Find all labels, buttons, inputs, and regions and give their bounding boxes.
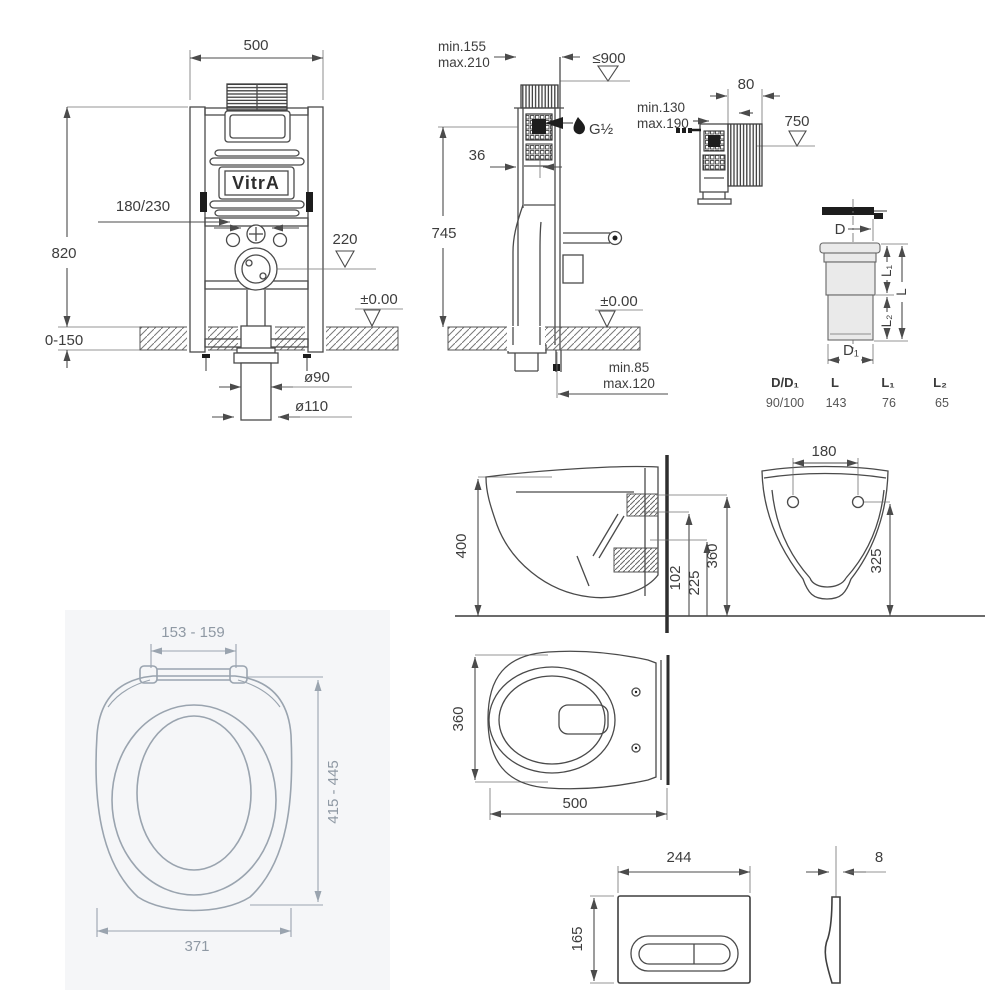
connector-size-table: D/D₁ L L₁ L₂ 90/100 143 76 65 (766, 375, 949, 410)
drawing-svg: 500 820 0-150 (0, 0, 1000, 1000)
dim-frame-height: 820 (51, 245, 76, 262)
dim-flush-pipe-heights: 180/230 (116, 198, 170, 215)
dim-supply-min: min.130 (637, 100, 685, 115)
dim-frame-side-height: 745 (431, 225, 456, 242)
dim-hinge-spacing: 153 - 159 (161, 624, 224, 641)
dim-plate-width: 244 (666, 849, 691, 866)
figure-frame-front-view: 500 820 0-150 (45, 37, 403, 420)
dim-pipe-offset: 36 (469, 147, 486, 164)
dim-floor-adjust: 0-150 (45, 332, 83, 349)
dim-dia90: ø90 (304, 369, 330, 386)
table-header-l: L (831, 375, 839, 390)
dim-panel-max-height: ≤900 (592, 50, 625, 67)
dim-depth-max: max.210 (438, 55, 490, 70)
dim-supply-max: max.190 (637, 116, 689, 131)
vitra-logo: VitrA (232, 173, 280, 193)
figure-connector-pipe: D L₁ L L₂ D₁ D/D₁ L L₁ L₂ (766, 199, 949, 410)
dim-datum-front: ±0.00 (360, 291, 397, 308)
figure-frame-compact-view: 80 min.130 max.190 750 (637, 76, 815, 204)
dim-wc-height: 400 (453, 533, 470, 558)
figure-flush-plate-side: 8 (806, 846, 886, 983)
figure-wc-front-view: 180 325 (762, 443, 890, 616)
figure-frame-side-view: min.155 max.210 ≤900 36 G½ (431, 39, 668, 398)
dim-water-connection: G½ (589, 121, 614, 138)
dim-outlet-max: max.120 (603, 376, 655, 391)
dim-pipe-l1: L₁ (879, 265, 894, 278)
dim-plate-height: 165 (569, 926, 586, 951)
dim-compact-height: 750 (784, 113, 809, 130)
dim-pipe-l2: L₂ (879, 315, 894, 328)
figure-flush-plate-front: 244 165 (569, 849, 750, 983)
dim-frame-width: 500 (243, 37, 268, 54)
dim-tank-depth: 80 (738, 76, 755, 93)
dim-outlet-min: min.85 (609, 360, 650, 375)
dim-seat-length: 415 - 445 (325, 760, 342, 823)
figure-wc-top-view: 360 500 (450, 651, 668, 820)
table-header-l1: L₁ (881, 375, 894, 390)
table-value-l1: 76 (882, 396, 896, 410)
dim-rim-height: 325 (868, 548, 885, 573)
table-value-l: 143 (826, 396, 847, 410)
dim-datum-side: ±0.00 (600, 293, 637, 310)
dim-pipe-d: D (835, 221, 846, 238)
table-header-l2: L₂ (933, 375, 947, 390)
table-value-l2: 65 (935, 396, 949, 410)
dim-seat-width: 371 (184, 938, 209, 955)
dim-dia110: ø110 (295, 398, 328, 415)
figure-wc-side-view: 400 102 225 360 (453, 455, 985, 633)
dim-wc-depth: 500 (562, 795, 587, 812)
table-header-dd1: D/D₁ (771, 375, 799, 390)
dim-wc-width: 360 (450, 706, 467, 731)
dim-pipe-d1: D₁ (843, 342, 859, 359)
dim-inlet-height: 225 (686, 570, 703, 595)
dim-hole-spacing: 180 (811, 443, 836, 460)
figure-seat-top-view: 153 - 159 415 - 445 371 (65, 610, 390, 990)
dim-fixing-height: 360 (704, 543, 721, 568)
dim-plate-thickness: 8 (875, 849, 883, 866)
dim-pipe-l: L (894, 288, 909, 296)
dim-depth-min: min.155 (438, 39, 486, 54)
table-value-dd1: 90/100 (766, 396, 804, 410)
dim-drain-depth: 220 (332, 231, 357, 248)
technical-drawing-sheet: 500 820 0-150 (0, 0, 1000, 1000)
dim-outlet-height: 102 (667, 565, 684, 590)
